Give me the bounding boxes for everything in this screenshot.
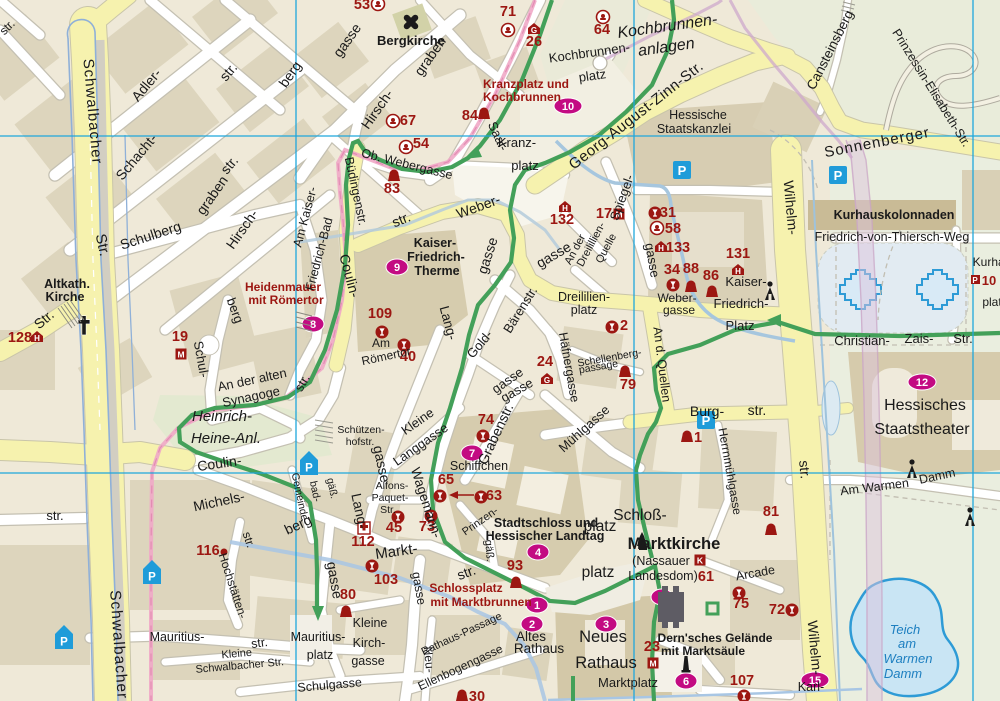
- svg-text:24: 24: [537, 354, 553, 370]
- svg-text:gäß.: gäß.: [482, 539, 496, 562]
- svg-text:P: P: [305, 463, 313, 475]
- svg-text:Warmen: Warmen: [884, 651, 933, 666]
- svg-text:Neu-: Neu-: [421, 646, 437, 673]
- svg-text:Stadtschloss und: Stadtschloss und: [494, 516, 598, 530]
- svg-text:P: P: [60, 637, 68, 649]
- svg-text:str.: str.: [250, 635, 268, 651]
- svg-text:65: 65: [438, 472, 454, 488]
- svg-text:10: 10: [982, 273, 996, 288]
- svg-text:Friedrich-: Friedrich-: [714, 296, 769, 311]
- svg-text:gasse: gasse: [663, 303, 695, 317]
- svg-text:Kurhaus: Kurhaus: [973, 255, 1000, 269]
- svg-text:9: 9: [394, 262, 400, 274]
- svg-text:mit Marktsäule: mit Marktsäule: [661, 644, 745, 658]
- svg-text:M: M: [649, 659, 656, 669]
- svg-text:4: 4: [535, 547, 542, 559]
- svg-text:67: 67: [400, 113, 416, 129]
- svg-text:Christian-: Christian-: [834, 333, 890, 348]
- svg-text:Dreililien-: Dreililien-: [558, 290, 610, 304]
- svg-text:10: 10: [562, 101, 574, 113]
- svg-text:63: 63: [486, 488, 502, 504]
- svg-text:str.: str.: [796, 460, 814, 480]
- svg-text:Alfons-: Alfons-: [376, 480, 409, 492]
- svg-text:Kirch-: Kirch-: [353, 636, 386, 650]
- svg-text:Kaiser-: Kaiser-: [725, 274, 766, 289]
- svg-text:Karl-: Karl-: [798, 680, 824, 694]
- svg-text:str.: str.: [46, 508, 63, 523]
- svg-text:Landesdom): Landesdom): [628, 569, 698, 583]
- svg-text:1: 1: [694, 430, 702, 446]
- svg-text:Heinrich-: Heinrich-: [192, 408, 252, 425]
- svg-text:112: 112: [351, 534, 374, 550]
- svg-text:Kochbrunnen: Kochbrunnen: [483, 90, 561, 104]
- svg-text:Staatskanzlei: Staatskanzlei: [657, 122, 731, 136]
- svg-text:P: P: [834, 168, 843, 183]
- svg-text:Kleine: Kleine: [353, 616, 388, 630]
- svg-text:Dern'sches Gelände: Dern'sches Gelände: [658, 631, 773, 645]
- svg-text:72: 72: [769, 602, 785, 618]
- svg-text:P: P: [148, 572, 156, 584]
- svg-text:107: 107: [730, 673, 754, 689]
- svg-text:75: 75: [733, 596, 749, 612]
- svg-text:109: 109: [368, 306, 392, 322]
- svg-text:Altkath.: Altkath.: [44, 277, 90, 291]
- svg-text:7: 7: [469, 448, 475, 460]
- svg-text:132: 132: [550, 212, 574, 228]
- svg-text:M: M: [177, 350, 184, 360]
- svg-text:mit Marktbrunnen: mit Marktbrunnen: [430, 595, 531, 609]
- svg-text:84: 84: [462, 108, 478, 124]
- svg-text:86: 86: [703, 268, 719, 284]
- svg-text:platz: platz: [582, 564, 615, 581]
- svg-text:26: 26: [526, 34, 542, 50]
- svg-text:mit Römertor: mit Römertor: [248, 293, 324, 307]
- svg-text:6: 6: [683, 676, 689, 688]
- svg-text:Marktplatz: Marktplatz: [598, 675, 658, 690]
- svg-text:(Nassauer: (Nassauer: [632, 554, 690, 568]
- svg-text:G: G: [544, 376, 550, 385]
- svg-text:Schlossplatz: Schlossplatz: [429, 581, 502, 595]
- svg-text:Mauritius-: Mauritius-: [291, 630, 346, 644]
- svg-text:Hessische: Hessische: [669, 108, 727, 122]
- svg-text:Schloß-: Schloß-: [613, 507, 666, 524]
- svg-text:Staatstheater: Staatstheater: [874, 421, 970, 438]
- svg-text:131: 131: [726, 246, 750, 262]
- svg-text:2: 2: [620, 318, 628, 334]
- svg-text:hofstr.: hofstr.: [346, 436, 375, 448]
- svg-text:79: 79: [620, 377, 636, 393]
- svg-text:81: 81: [763, 504, 779, 520]
- svg-text:93: 93: [507, 558, 523, 574]
- svg-text:Platz: Platz: [726, 318, 755, 333]
- svg-text:Friedrich-von-Thiersch-Weg: Friedrich-von-Thiersch-Weg: [815, 230, 970, 244]
- svg-text:Rathaus: Rathaus: [575, 654, 636, 672]
- svg-text:Teich: Teich: [890, 622, 921, 637]
- svg-text:K: K: [697, 556, 704, 566]
- svg-text:Kirche: Kirche: [46, 290, 85, 304]
- svg-text:Neues: Neues: [579, 628, 627, 646]
- svg-text:Schützen-: Schützen-: [337, 424, 385, 436]
- svg-text:str.: str.: [748, 402, 767, 418]
- svg-text:H: H: [34, 334, 40, 343]
- svg-text:53: 53: [354, 0, 370, 13]
- svg-text:Mauritius-: Mauritius-: [150, 630, 205, 644]
- svg-text:Hessisches: Hessisches: [884, 397, 966, 414]
- svg-text:Zais-: Zais-: [905, 331, 934, 346]
- svg-text:Kaiser-: Kaiser-: [414, 236, 456, 250]
- svg-text:34: 34: [664, 262, 680, 278]
- svg-text:30: 30: [469, 689, 485, 701]
- svg-text:gasse: gasse: [351, 654, 384, 668]
- svg-text:19: 19: [172, 329, 188, 345]
- svg-text:58: 58: [665, 221, 681, 237]
- svg-text:133: 133: [666, 240, 690, 256]
- svg-text:1: 1: [534, 600, 540, 612]
- svg-text:platz: platz: [307, 648, 333, 662]
- svg-text:103: 103: [374, 572, 398, 588]
- svg-text:Therme: Therme: [414, 264, 459, 278]
- svg-text:Heine-Anl.: Heine-Anl.: [191, 430, 261, 447]
- svg-text:54: 54: [413, 136, 429, 152]
- svg-text:Kurhauskolonnaden: Kurhauskolonnaden: [834, 208, 955, 222]
- svg-text:platz: platz: [571, 303, 597, 317]
- svg-text:platz: platz: [511, 158, 538, 173]
- svg-text:Str.: Str.: [953, 331, 973, 346]
- svg-text:83: 83: [384, 181, 400, 197]
- svg-text:am: am: [898, 636, 916, 651]
- svg-text:88: 88: [683, 261, 699, 277]
- svg-text:12: 12: [916, 377, 928, 389]
- svg-text:Friedrich-: Friedrich-: [407, 250, 465, 264]
- svg-text:71: 71: [500, 4, 516, 20]
- svg-text:platz: platz: [982, 295, 1000, 309]
- svg-text:Damm: Damm: [884, 666, 922, 681]
- svg-text:Str.: Str.: [380, 504, 396, 516]
- svg-text:31: 31: [660, 205, 676, 221]
- svg-text:45: 45: [386, 520, 402, 536]
- svg-text:64: 64: [594, 22, 610, 38]
- svg-text:Kranz-: Kranz-: [498, 135, 536, 150]
- svg-text:Marktkirche: Marktkirche: [628, 535, 721, 553]
- svg-text:Paquet-: Paquet-: [372, 492, 409, 504]
- svg-text:Burg-: Burg-: [690, 403, 725, 419]
- svg-text:128: 128: [8, 330, 32, 346]
- svg-text:P: P: [972, 276, 978, 285]
- svg-text:Kranzplatz und: Kranzplatz und: [483, 77, 569, 91]
- svg-text:Rathaus: Rathaus: [514, 641, 565, 656]
- svg-text:Hessischer Landtag: Hessischer Landtag: [486, 529, 605, 543]
- svg-text:Bergkirche: Bergkirche: [377, 33, 445, 48]
- svg-text:P: P: [678, 163, 687, 178]
- svg-text:61: 61: [698, 569, 714, 585]
- svg-text:Schiffchen: Schiffchen: [450, 459, 508, 473]
